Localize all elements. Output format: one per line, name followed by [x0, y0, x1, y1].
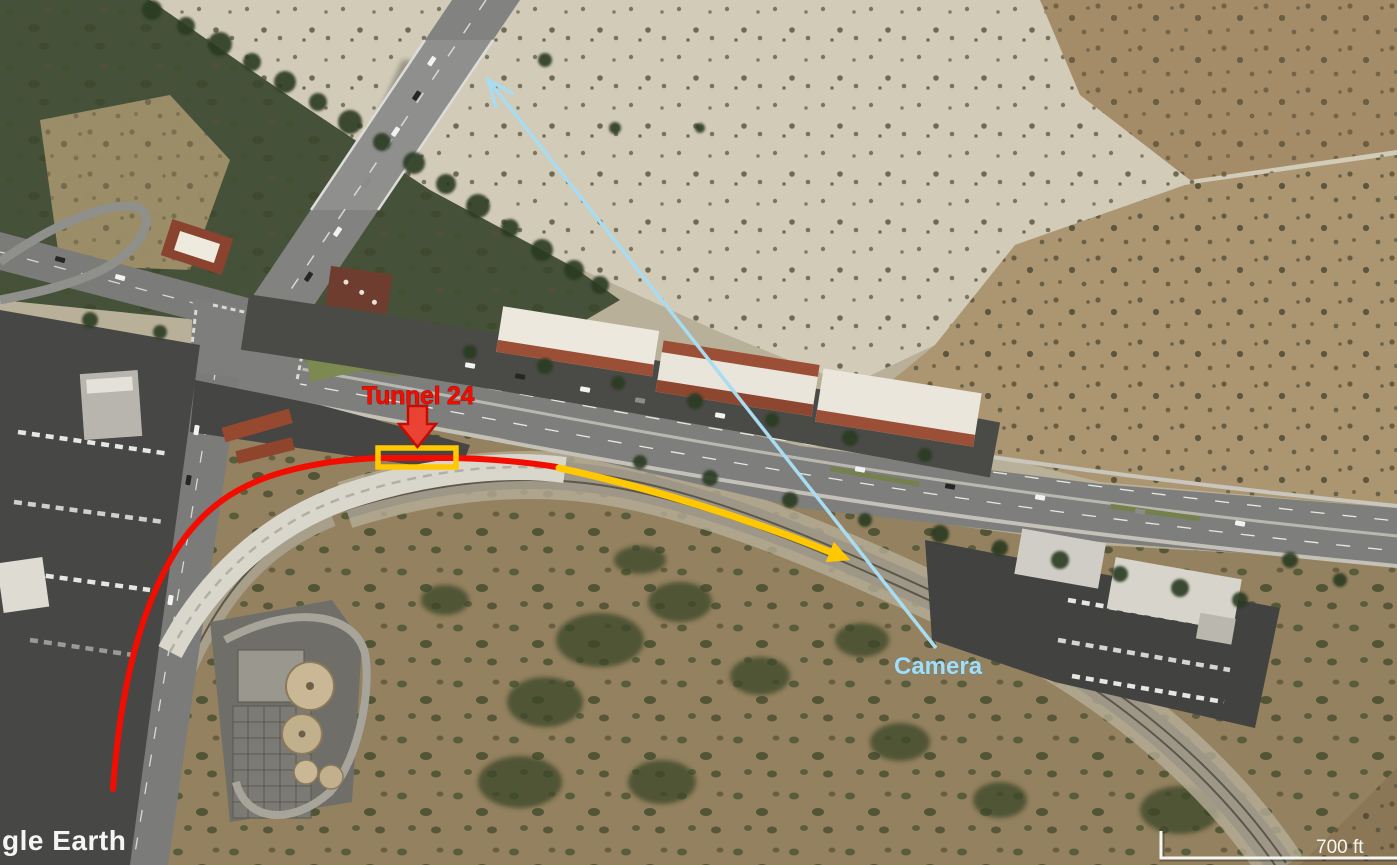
satellite-imagery: Tunnel 24 Camera 700 ft gle Earth	[0, 0, 1397, 865]
scale-bar-label: 700 ft	[1316, 837, 1364, 858]
camera-label: Camera	[894, 653, 983, 680]
corner-building	[326, 266, 393, 314]
water-treatment-plant	[210, 600, 367, 822]
tunnel-label: Tunnel 24	[362, 382, 475, 410]
satellite-map-canvas[interactable]: Tunnel 24 Camera 700 ft gle Earth	[0, 0, 1397, 865]
google-earth-watermark: gle Earth	[2, 825, 126, 856]
